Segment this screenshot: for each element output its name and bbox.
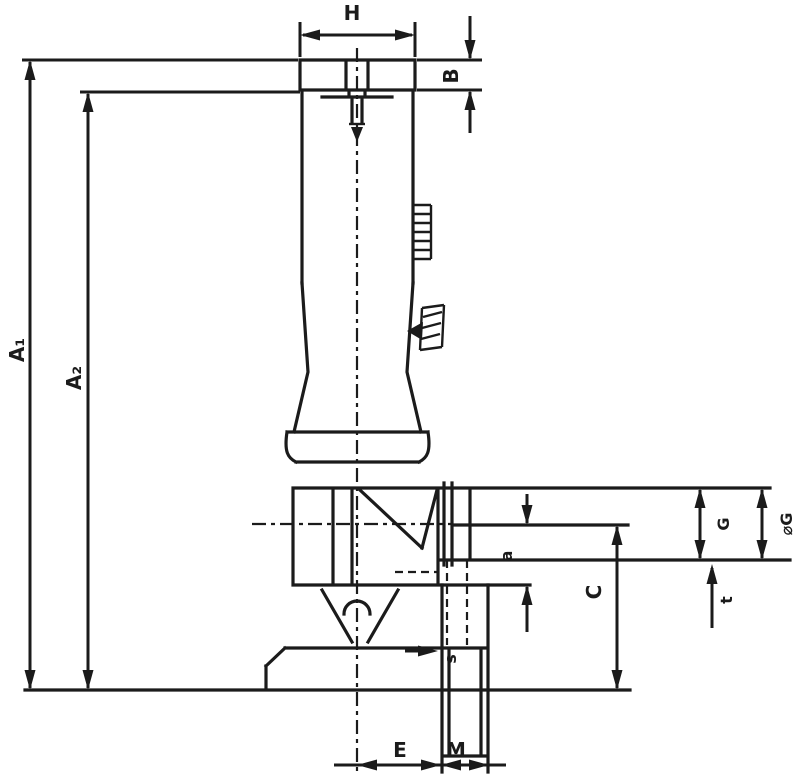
dim-g: G (695, 488, 734, 560)
arrowhead-down-icon (522, 505, 533, 525)
drawing-canvas: H B A₁ A₂ a C (0, 0, 800, 779)
arrowhead-up-icon (612, 525, 623, 545)
arrowhead-up-icon (25, 60, 36, 80)
body-outline (293, 483, 790, 585)
arrowhead-left-icon (300, 30, 320, 41)
dim-a1: A₁ (5, 60, 298, 690)
label-h: H (344, 1, 361, 25)
label-g: G (714, 517, 733, 530)
stem-tip-detail (351, 127, 363, 142)
arrowhead-down-icon (757, 540, 768, 560)
dim-phi-g: ⌀G (757, 488, 797, 560)
label-phi-g: ⌀G (777, 513, 796, 536)
arrowhead-up-icon (83, 92, 94, 112)
dim-c: C (582, 525, 623, 690)
arrowhead-up-icon (695, 488, 706, 508)
dim-t: t (707, 564, 737, 628)
label-c: C (582, 585, 606, 600)
arrowhead-right-icon (421, 760, 441, 771)
label-e: E (393, 738, 407, 762)
label-a-small: a (497, 551, 516, 562)
arrowhead-up-icon (522, 585, 533, 605)
label-t: t (717, 596, 736, 604)
arrowhead-up-icon (757, 488, 768, 508)
label-b: B (439, 68, 463, 83)
arrowhead-up-icon (465, 90, 476, 110)
arrowhead-down-icon (695, 540, 706, 560)
dim-a-small: a (497, 494, 533, 632)
serration-detail (413, 205, 431, 259)
arrowhead-down-icon (465, 40, 476, 60)
arrowhead-down-icon (83, 670, 94, 690)
hidden-bore-lines (395, 560, 467, 645)
arrowhead-left-icon (357, 760, 377, 771)
label-a1: A₁ (5, 338, 29, 362)
dim-a2: A₂ (62, 92, 300, 690)
arrowhead-down-icon (25, 670, 36, 690)
base-and-outlet-outline (25, 585, 630, 772)
label-m: M (446, 738, 466, 762)
dim-b: B (417, 16, 482, 133)
arrowhead-right-icon (395, 30, 415, 41)
label-s: s (441, 654, 460, 664)
valve-dimension-drawing: H B A₁ A₂ a C (0, 0, 800, 779)
arrowhead-down-icon (612, 670, 623, 690)
arrowhead-right-icon (469, 760, 489, 771)
label-a2: A₂ (62, 366, 86, 390)
arrowhead-up-icon (707, 564, 718, 584)
clamp-tag-hatch (420, 305, 444, 350)
